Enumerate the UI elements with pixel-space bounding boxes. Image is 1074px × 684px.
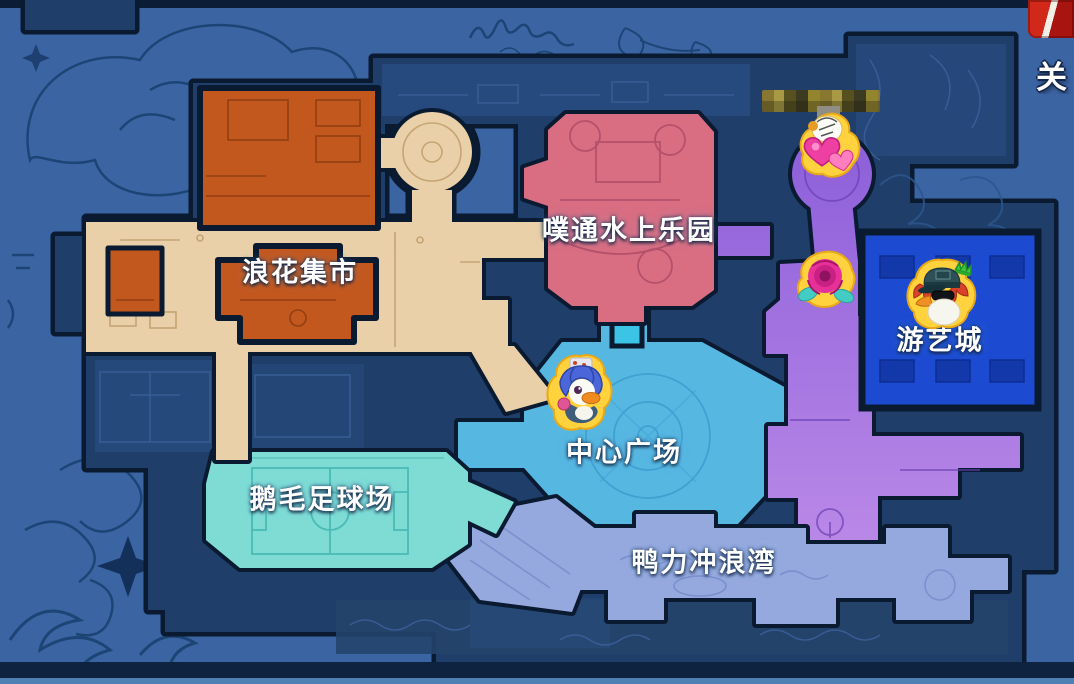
bottom-dark-band xyxy=(0,662,1074,678)
game-map-screen: 浪花集市 噗通水上乐园 中心广场 游艺城 鹅毛足球场 鸭力冲浪湾 xyxy=(0,0,1074,684)
top-strip xyxy=(0,0,1074,8)
bottom-light-strip xyxy=(0,678,1074,684)
close-button[interactable]: 关闭 xyxy=(1036,52,1074,94)
region-label-water-park: 噗通水上乐园 xyxy=(542,209,716,248)
player-marker-plaza xyxy=(544,352,618,441)
red-corner-button[interactable] xyxy=(1028,0,1074,38)
duck-with-hearts-icon xyxy=(795,110,861,180)
region-label-market: 浪花集市 xyxy=(242,251,358,290)
rose-marker xyxy=(794,250,858,315)
capped-duck-with-crown-icon xyxy=(902,258,980,330)
region-label-surf-bay: 鸭力冲浪湾 xyxy=(632,541,777,580)
region-label-football: 鹅毛足球场 xyxy=(250,478,395,517)
rose-icon xyxy=(794,250,858,310)
player-marker-arcade xyxy=(902,258,980,335)
player-marker-hearts xyxy=(795,110,861,185)
close-button-label: 关闭 xyxy=(1036,60,1067,94)
blue-haired-duck-icon xyxy=(544,352,618,436)
